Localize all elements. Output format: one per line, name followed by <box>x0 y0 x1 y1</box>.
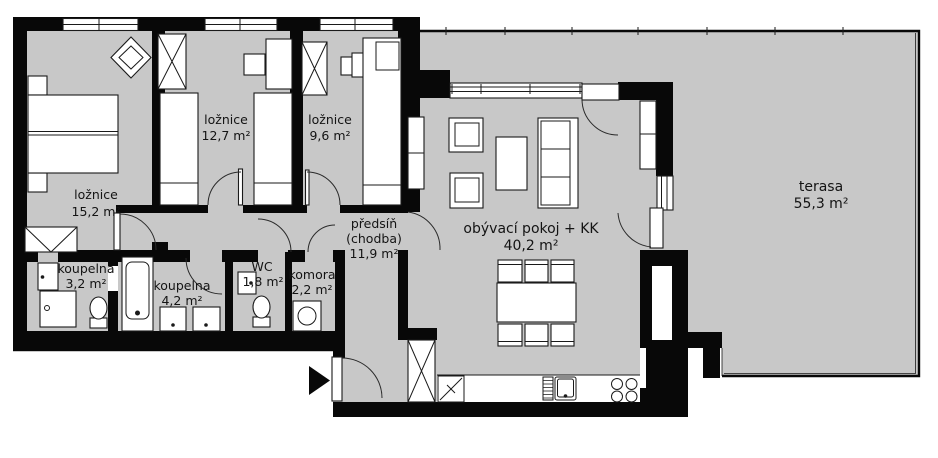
room-label-loznice-2: ložnice <box>204 112 248 127</box>
shower <box>40 291 76 327</box>
room-label-predsin-alt: (chodba) <box>346 231 402 246</box>
cabinet <box>640 101 656 169</box>
komora-fixtures <box>293 301 321 331</box>
room-area-obyvaci: 40,2 m² <box>504 238 559 254</box>
armchair <box>450 173 483 208</box>
sofa <box>538 118 578 208</box>
room-label-obyvaci: obývací pokoj + KK <box>463 221 599 237</box>
living-room-side-window <box>657 176 673 210</box>
toilet <box>90 297 107 328</box>
room-area-terasa: 55,3 m² <box>794 196 849 212</box>
bedroom-2-window <box>205 19 277 31</box>
sink <box>193 307 220 331</box>
wardrobe <box>25 227 77 252</box>
chair <box>244 54 265 75</box>
wardrobe <box>408 340 435 402</box>
bed <box>254 93 292 205</box>
room-area-predsin: 11,9 m² <box>350 246 399 261</box>
room-area-komora: 2,2 m² <box>291 282 332 297</box>
bed <box>160 93 198 205</box>
room-area-koupelna-1: 3,2 m² <box>65 276 106 291</box>
room-label-wc: WC <box>251 259 272 274</box>
room-label-loznice-3: ložnice <box>308 112 352 127</box>
room-label-terasa: terasa <box>799 179 843 195</box>
sink <box>160 307 186 331</box>
dining-chair <box>498 260 522 282</box>
tv-stand <box>408 117 424 189</box>
dining-set <box>497 260 576 346</box>
room-area-loznice-3: 9,6 m² <box>309 128 350 143</box>
dining-chair <box>498 324 522 346</box>
dining-chair <box>551 260 574 282</box>
bed <box>363 38 401 205</box>
bathroom-door-leaf <box>38 263 58 290</box>
floor-plan: ložnice 15,2 m² ložnice 12,7 m² ložnice … <box>0 0 938 458</box>
entrance-arrow-icon <box>309 366 330 395</box>
washing-machine <box>293 301 321 331</box>
shaft-inset <box>652 266 672 340</box>
room-area-loznice-2: 12,7 m² <box>202 128 251 143</box>
double-bed <box>28 95 118 173</box>
room-area-koupelna-2: 4,2 m² <box>161 293 202 308</box>
nightstand <box>28 173 47 192</box>
dining-table <box>497 283 576 322</box>
kitchen-counter-strip <box>437 375 640 403</box>
shaft-inset <box>640 348 646 388</box>
toilet <box>253 296 270 327</box>
coffee-table <box>496 137 527 190</box>
living-room-window-band <box>450 83 582 98</box>
nightstand <box>28 76 47 95</box>
bathtub <box>122 257 153 331</box>
dining-chair <box>551 324 574 346</box>
armchair <box>449 118 483 152</box>
room-area-loznice-1: 15,2 m² <box>72 204 121 219</box>
bedroom-1-window <box>63 19 138 31</box>
dining-chair <box>525 324 548 346</box>
floors <box>13 17 919 417</box>
room-label-loznice-1: ložnice <box>74 187 118 202</box>
wardrobe <box>158 34 186 89</box>
room-label-koupelna-2: koupelna <box>153 278 210 293</box>
room-label-komora: komora <box>288 267 335 282</box>
room-area-wc: 1,8 m² <box>242 274 283 289</box>
bedroom-3-window <box>320 19 393 31</box>
room-label-koupelna-1: koupelna <box>57 261 114 276</box>
wardrobe <box>302 42 327 95</box>
floor-plan-page: ložnice 15,2 m² ložnice 12,7 m² ložnice … <box>0 0 938 458</box>
room-label-predsin: předsíň <box>351 216 397 231</box>
desk <box>266 39 292 89</box>
dining-chair <box>525 260 548 282</box>
